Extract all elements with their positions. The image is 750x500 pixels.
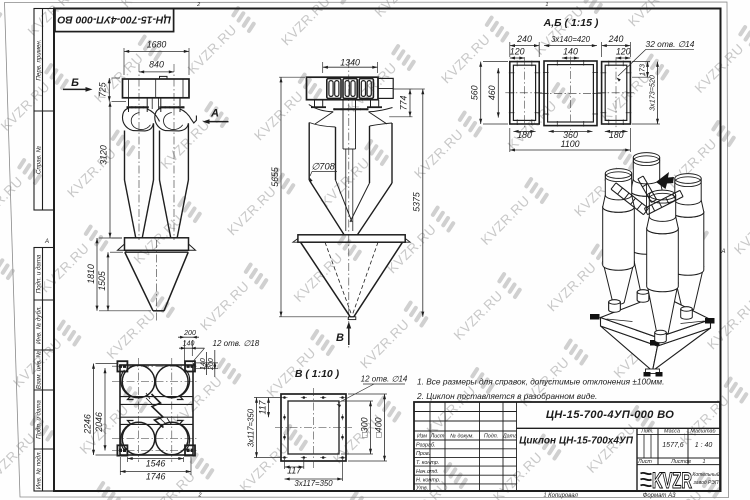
svg-text:Н. контр.: Н. контр. (416, 478, 440, 484)
svg-text:Разраб.: Разраб. (416, 442, 436, 448)
svg-text:32 отв. ∅14: 32 отв. ∅14 (646, 39, 695, 49)
svg-text:117: 117 (287, 466, 302, 476)
svg-text:Дата: Дата (502, 433, 517, 439)
svg-text:1680: 1680 (147, 40, 167, 50)
svg-text:Масштаб: Масштаб (690, 429, 716, 435)
svg-text:А: А (44, 239, 49, 245)
svg-text:Инв. № дубл.: Инв. № дубл. (36, 306, 43, 344)
svg-text:3120: 3120 (98, 145, 108, 165)
svg-text:Формат А3: Формат А3 (643, 493, 676, 499)
svg-text:Инв. № подл.: Инв. № подл. (36, 451, 43, 489)
svg-text:2. Циклон поставляется в разоб: 2. Циклон поставляется в разобранном вид… (416, 391, 597, 401)
svg-text:Взам. инв. №: Взам. инв. № (36, 351, 43, 390)
svg-text:3х140=420: 3х140=420 (551, 35, 590, 44)
svg-text:2: 2 (197, 493, 201, 499)
svg-text:1 : 40: 1 : 40 (695, 442, 713, 449)
svg-text:774: 774 (399, 95, 409, 110)
svg-text:5375: 5375 (412, 192, 422, 212)
svg-text:□400: □400 (373, 417, 383, 437)
svg-text:200: 200 (183, 330, 196, 337)
svg-text:2: 2 (196, 2, 200, 8)
svg-text:1100: 1100 (561, 139, 580, 149)
svg-text:5655: 5655 (270, 167, 280, 187)
svg-text:1505: 1505 (97, 271, 107, 291)
svg-text:∅708: ∅708 (311, 162, 335, 172)
svg-text:Т. контр.: Т. контр. (416, 460, 439, 466)
svg-text:120: 120 (616, 47, 631, 57)
svg-text:140: 140 (563, 47, 578, 57)
svg-text:□300: □300 (359, 417, 369, 437)
svg-text:1810: 1810 (86, 264, 96, 284)
svg-text:Котельный: Котельный (692, 471, 719, 478)
svg-text:Справ. №: Справ. № (36, 146, 43, 174)
svg-text:Изм: Изм (417, 433, 427, 439)
svg-text:А,Б ( 1:15 ): А,Б ( 1:15 ) (543, 17, 599, 29)
svg-text:120: 120 (510, 47, 525, 57)
svg-text:Перв. примен.: Перв. примен. (36, 39, 43, 80)
svg-text:460: 460 (487, 85, 497, 100)
svg-text:В: В (336, 332, 344, 344)
svg-text:12 отв. ∅14: 12 отв. ∅14 (361, 375, 408, 384)
svg-text:Нач.отд.: Нач.отд. (416, 469, 439, 475)
svg-text:240: 240 (516, 34, 532, 44)
svg-text:2246: 2246 (82, 414, 92, 435)
svg-text:Утв.: Утв. (415, 485, 428, 491)
svg-text:Подп. и дата: Подп. и дата (36, 400, 43, 439)
svg-text:А: А (210, 108, 219, 120)
svg-text:ЦН-15-700-4УП-000 ВО: ЦН-15-700-4УП-000 ВО (57, 13, 171, 24)
svg-text:Лист: Лист (430, 433, 445, 439)
svg-text:240: 240 (608, 34, 624, 44)
svg-text:2046: 2046 (94, 412, 104, 433)
svg-text:840: 840 (149, 60, 164, 70)
svg-text:Масса: Масса (664, 429, 680, 435)
svg-text:200: 200 (208, 358, 215, 371)
svg-text:ЦН-15-700-4УП-000 ВО: ЦН-15-700-4УП-000 ВО (546, 409, 674, 421)
svg-text:А: А (720, 249, 725, 255)
svg-text:3х173=520: 3х173=520 (648, 75, 657, 111)
svg-text:725: 725 (98, 82, 108, 97)
svg-text:Лит.: Лит. (640, 429, 654, 435)
svg-text:173: 173 (638, 64, 647, 76)
svg-text:1: 1 (545, 2, 548, 8)
svg-text:117: 117 (257, 399, 267, 414)
svg-text:Б: Б (71, 77, 79, 89)
svg-text:Циклон ЦН-15-700х4УП: Циклон ЦН-15-700х4УП (519, 436, 634, 447)
svg-text:Пров.: Пров. (416, 451, 430, 457)
svg-text:завод РЭП: завод РЭП (693, 480, 719, 486)
svg-text:Подп.: Подп. (484, 433, 498, 439)
svg-text:Лист: Лист (637, 459, 652, 465)
svg-text:1: 1 (543, 493, 546, 499)
svg-text:180: 180 (517, 130, 532, 140)
svg-text:Копировал: Копировал (548, 493, 578, 499)
svg-text:Подп. и дата: Подп. и дата (36, 254, 43, 293)
svg-text:1577,6: 1577,6 (662, 442, 684, 449)
svg-text:1746: 1746 (146, 472, 166, 482)
svg-text:1340: 1340 (340, 58, 360, 68)
svg-text:12 отв. ∅18: 12 отв. ∅18 (213, 339, 260, 348)
svg-text:1: 1 (703, 459, 706, 465)
svg-text:В ( 1:10 ): В ( 1:10 ) (295, 368, 340, 380)
svg-text:560: 560 (470, 85, 480, 100)
svg-text:KVZR: KVZR (652, 468, 692, 493)
svg-text:1546: 1546 (146, 459, 166, 469)
svg-text:№ докум.: № докум. (450, 433, 474, 439)
svg-text:Листов: Листов (670, 459, 691, 465)
svg-text:3х117=350: 3х117=350 (247, 408, 256, 447)
svg-text:180: 180 (609, 130, 624, 140)
svg-text:3х117=350: 3х117=350 (294, 479, 333, 488)
svg-text:140: 140 (183, 341, 195, 348)
svg-text:140: 140 (200, 358, 207, 370)
svg-text:1. Все размеры для справок, до: 1. Все размеры для справок, допустимые о… (417, 377, 664, 387)
